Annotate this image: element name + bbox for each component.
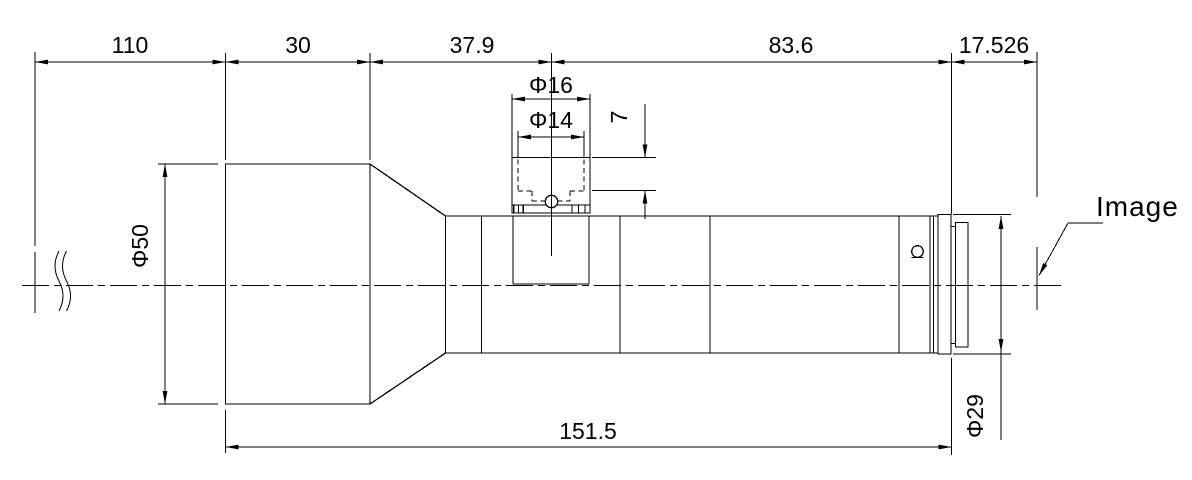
image-plane-label: Image (1096, 191, 1179, 222)
dim-text-7: 7 (606, 111, 632, 124)
dim-text-37-9: 37.9 (450, 32, 495, 58)
dim-text-17-526: 17.526 (959, 32, 1029, 58)
taper-top-edge (370, 164, 446, 216)
lens-dimension-drawing: 110 30 37.9 83.6 17.526 151.5 Φ16 Φ14 7 … (0, 0, 1192, 480)
dim-text-151-5: 151.5 (559, 418, 617, 444)
taper-bottom-edge (370, 353, 446, 404)
dimension-texts: 110 30 37.9 83.6 17.526 151.5 Φ16 Φ14 7 … (112, 32, 1179, 444)
front-barrel (226, 164, 371, 404)
dim-text-phi29: Φ29 (962, 394, 988, 438)
break-symbol (55, 251, 71, 311)
technical-drawing-sheet: 110 30 37.9 83.6 17.526 151.5 Φ16 Φ14 7 … (0, 0, 1192, 480)
image-leader (1039, 223, 1103, 276)
dim-text-30: 30 (285, 32, 311, 58)
rear-set-screw (912, 246, 924, 258)
dim-text-phi14: Φ14 (529, 107, 573, 133)
dim-text-phi50: Φ50 (127, 224, 153, 268)
lens-outline (226, 158, 969, 405)
dim-text-phi16: Φ16 (529, 72, 573, 98)
dim-text-83-6: 83.6 (769, 32, 814, 58)
rear-mount-cylinder (956, 223, 969, 348)
leader-arrow (1039, 223, 1068, 276)
rear-flange (938, 215, 951, 355)
dim-text-110: 110 (112, 32, 149, 58)
set-screw-hole-icon (912, 246, 924, 258)
